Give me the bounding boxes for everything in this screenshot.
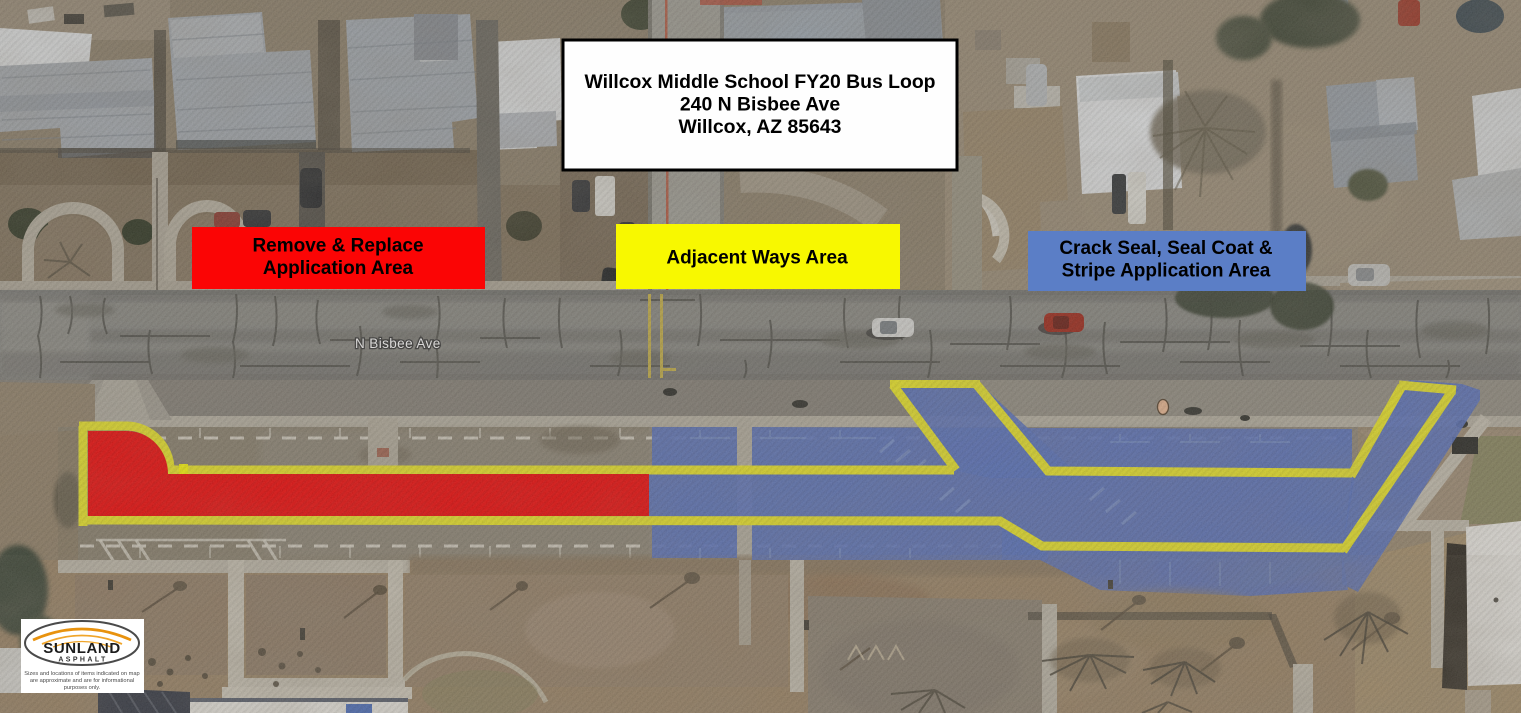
svg-text:Willcox, AZ 85643: Willcox, AZ 85643: [679, 116, 842, 138]
svg-text:Sizes and locations of items i: Sizes and locations of items indicated o…: [24, 671, 139, 677]
svg-text:Adjacent Ways Area: Adjacent Ways Area: [666, 248, 848, 269]
svg-text:Remove & Replace: Remove & Replace: [252, 236, 423, 257]
svg-text:Willcox Middle School FY20 Bus: Willcox Middle School FY20 Bus Loop: [584, 71, 935, 93]
svg-text:240 N Bisbee Ave: 240 N Bisbee Ave: [680, 94, 840, 116]
svg-text:are approximate and are for in: are approximate and are for informationa…: [30, 678, 134, 684]
svg-text:purposes only.: purposes only.: [64, 685, 101, 691]
svg-text:Application Area: Application Area: [263, 258, 414, 279]
svg-text:SUNLAND: SUNLAND: [43, 640, 121, 657]
svg-text:Stripe Application Area: Stripe Application Area: [1062, 261, 1271, 282]
svg-text:Crack Seal, Seal Coat &: Crack Seal, Seal Coat &: [1059, 238, 1273, 259]
svg-text:ASPHALT: ASPHALT: [58, 657, 107, 664]
